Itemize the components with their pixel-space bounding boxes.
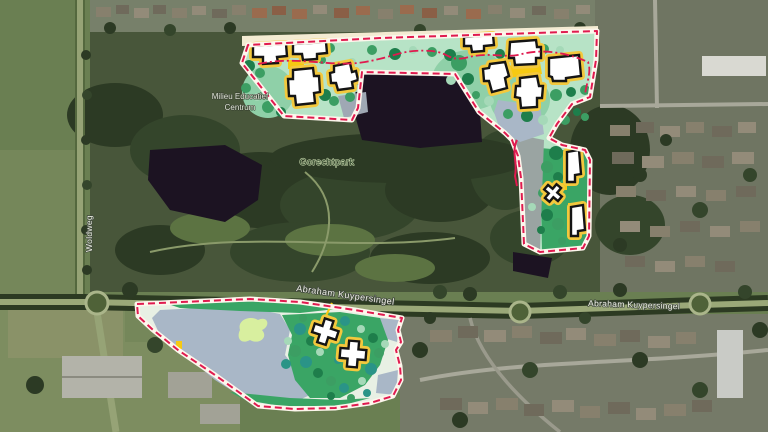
label-woldweg: Woldweg [84, 215, 94, 252]
warehouse-roof [702, 56, 766, 76]
roundabout-center [510, 302, 530, 322]
aerial-plan-map: Milieu Educatief Centrum Gorechtpark Wol… [0, 0, 768, 432]
label-gorechtpark: Gorechtpark [299, 157, 354, 167]
label-milieu-educatief-line2: Centrum [225, 103, 256, 112]
building [509, 40, 541, 65]
roundabout-west [86, 292, 108, 314]
map-canvas[interactable]: Milieu Educatief Centrum Gorechtpark Wol… [0, 0, 768, 432]
building [549, 55, 581, 81]
label-milieu-educatief-line1: Milieu Educatief [212, 92, 269, 101]
building [571, 205, 585, 236]
apartment-tower-roof [717, 330, 743, 398]
roundabout-east [690, 294, 710, 314]
